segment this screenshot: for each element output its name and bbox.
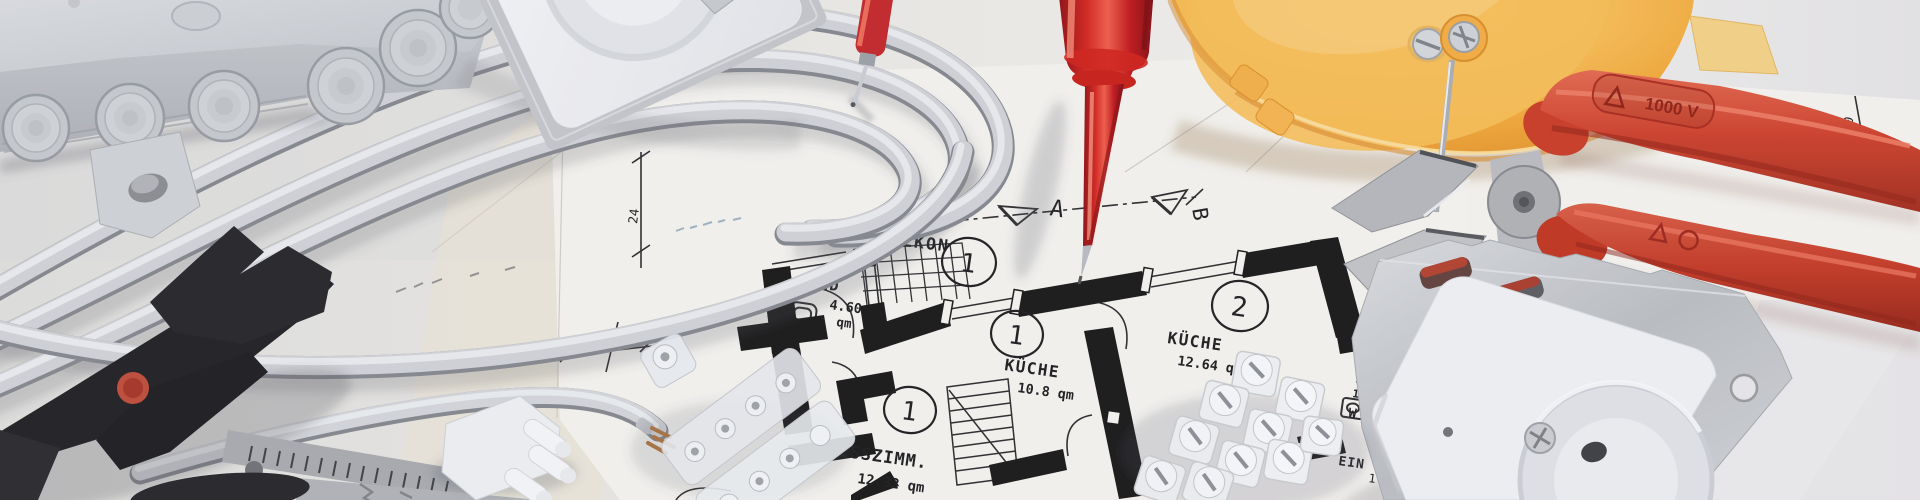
color-grade-overlay <box>0 0 1920 500</box>
photo-electrician-tools-floorplan: BALKON 1 BAD 4.60 qm KÜCHE 10.8 qm 1 KÜC… <box>0 0 1920 500</box>
